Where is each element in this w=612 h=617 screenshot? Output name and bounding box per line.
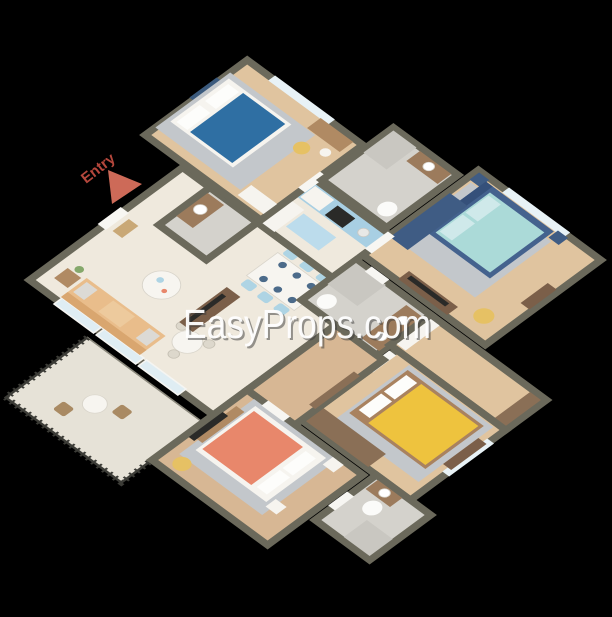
floorplan-stage: Entry EasyProps.com EasyProps.com	[0, 0, 612, 612]
floorplan-3d-render: Entry EasyProps.com EasyProps.com	[0, 0, 612, 612]
watermark: EasyProps.com EasyProps.com	[183, 301, 433, 349]
entry-label-group: Entry	[78, 150, 142, 204]
watermark-text: EasyProps.com	[183, 301, 431, 347]
